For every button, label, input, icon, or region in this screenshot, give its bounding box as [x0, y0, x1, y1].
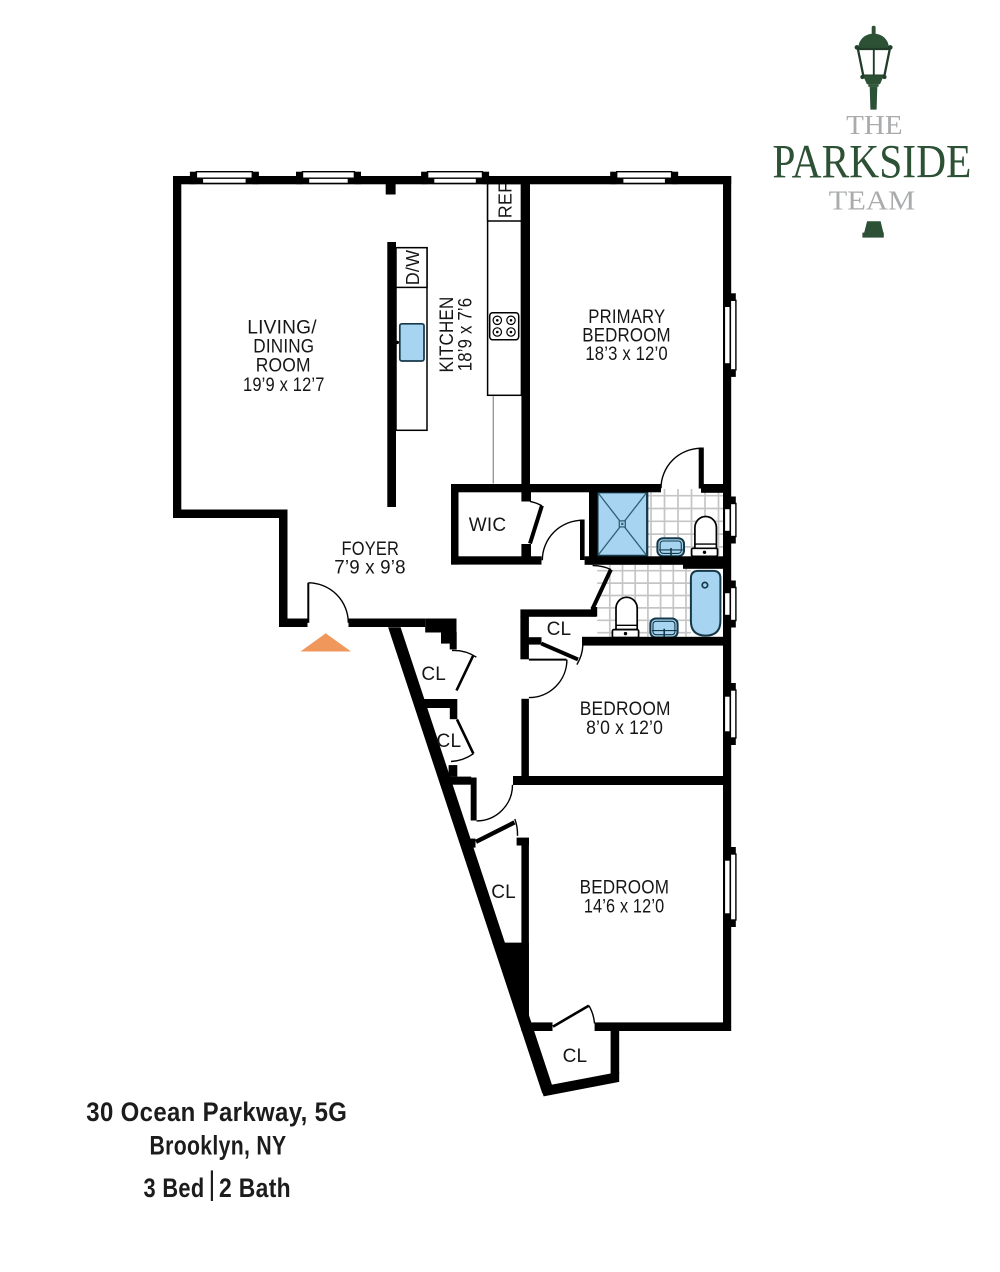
svg-text:Brooklyn, NY: Brooklyn, NY — [150, 1131, 287, 1161]
svg-text:2 Bath: 2 Bath — [219, 1173, 291, 1203]
svg-text:DINING: DINING — [253, 337, 314, 358]
svg-text:7’9 x 9’8: 7’9 x 9’8 — [334, 558, 406, 579]
svg-text:D/W: D/W — [403, 250, 423, 286]
svg-text:18’9 x 7’6: 18’9 x 7’6 — [455, 298, 476, 372]
svg-text:14’6 x 12’0: 14’6 x 12’0 — [584, 897, 665, 918]
svg-text:ROOM: ROOM — [256, 356, 311, 377]
svg-text:8’0 x 12’0: 8’0 x 12’0 — [586, 718, 663, 739]
svg-text:19’9 x 12’7: 19’9 x 12’7 — [243, 375, 325, 396]
svg-text:WIC: WIC — [469, 515, 507, 536]
svg-text:18’3 x 12’0: 18’3 x 12’0 — [585, 344, 668, 365]
svg-text:BEDROOM: BEDROOM — [580, 699, 671, 720]
svg-text:PARKSIDE: PARKSIDE — [772, 136, 971, 189]
svg-text:LIVING/: LIVING/ — [247, 318, 317, 339]
svg-text:REF: REF — [495, 182, 515, 219]
svg-text:CL: CL — [491, 882, 516, 903]
svg-text:BEDROOM: BEDROOM — [580, 878, 670, 899]
svg-text:CL: CL — [437, 731, 462, 752]
svg-text:CL: CL — [421, 664, 446, 685]
svg-text:3 Bed: 3 Bed — [144, 1173, 205, 1203]
svg-text:CL: CL — [563, 1046, 588, 1067]
svg-text:TEAM: TEAM — [829, 186, 916, 216]
svg-text:CL: CL — [547, 619, 572, 640]
svg-text:30 Ocean Parkway, 5G: 30 Ocean Parkway, 5G — [86, 1097, 347, 1127]
